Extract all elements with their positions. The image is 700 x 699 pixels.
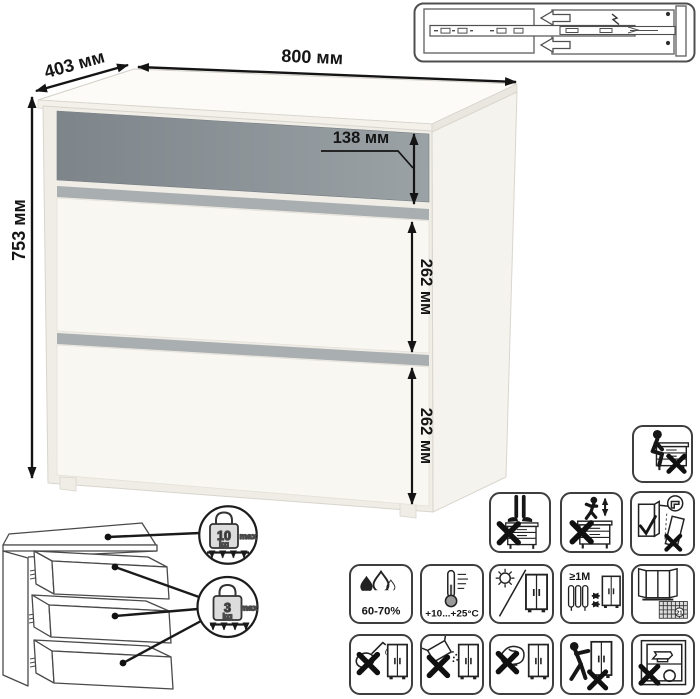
radiator-icon: [569, 586, 588, 611]
sun-icon: [500, 573, 510, 583]
no-abrasive-sponges-icon: [489, 634, 554, 695]
open-drawer-2: [32, 595, 171, 643]
drawer-load-unit: kg: [223, 611, 233, 621]
side-panel: [432, 92, 517, 512]
temperature-label: +10...+25°C: [425, 608, 479, 618]
no-abrasive-powders-icon: [420, 634, 484, 695]
top-load-unit: kg: [219, 539, 229, 549]
no-jumping-icon: [560, 492, 623, 553]
drawer-load-max: max: [240, 603, 257, 613]
open-drawer-1: [34, 551, 169, 599]
middle-drawer-front: [57, 198, 429, 353]
height-dimension: 753 мм: [9, 97, 32, 478]
height-label: 753 мм: [9, 199, 29, 261]
no-standing-icon: [489, 492, 551, 553]
no-dragging-icon: [560, 634, 624, 695]
bottom-drawer-label: 262 мм: [417, 408, 435, 465]
no-direct-sunlight-icon: [489, 564, 554, 624]
drawer-slide-inset: [415, 4, 695, 62]
foot-left: [60, 477, 76, 491]
middle-drawer-label: 262 мм: [417, 259, 435, 316]
telescopic-rail: [430, 26, 675, 37]
open-dresser-top: [3, 523, 156, 545]
no-overloading-icon: [631, 634, 695, 695]
top-drawer-label: 138 мм: [333, 129, 390, 147]
acclimatize-calendar-icon: 21: [631, 564, 695, 624]
humidity-label: 60-70%: [362, 606, 401, 618]
load-limit-diagram: 10 kg max 3 kg max: [3, 506, 258, 689]
heat-distance-label: ≥1M: [569, 571, 590, 583]
anchor-to-wall-icon: [630, 491, 695, 556]
dresser-illustration: [38, 69, 517, 518]
top-load-max: max: [239, 531, 256, 541]
humidity-range-icon: 60-70%: [349, 564, 413, 624]
calendar-day-label: 21: [676, 610, 682, 616]
powder-dots: [452, 651, 458, 662]
drawer-load-limit-badge: 3 kg max: [198, 577, 258, 637]
powder-box-icon: [422, 636, 454, 664]
no-sitting-icon: [632, 425, 693, 483]
calendar-icon: [659, 601, 687, 618]
product-diagram-page: 403 мм 800 мм 753 мм 138 мм 262 мм 262 м…: [0, 0, 700, 699]
temperature-range-icon: +10...+25°C: [420, 564, 484, 624]
open-dresser-side: [3, 551, 28, 686]
width-label: 800 мм: [281, 46, 343, 68]
foot-right: [400, 503, 416, 518]
no-aggressive-liquids-icon: [349, 634, 413, 695]
top-load-limit-badge: 10 kg max: [199, 506, 257, 564]
open-window-icon: [639, 569, 677, 600]
depth-label: 403 мм: [42, 46, 107, 82]
keep-distance-from-heat-icon: ≥1M: [560, 564, 624, 624]
